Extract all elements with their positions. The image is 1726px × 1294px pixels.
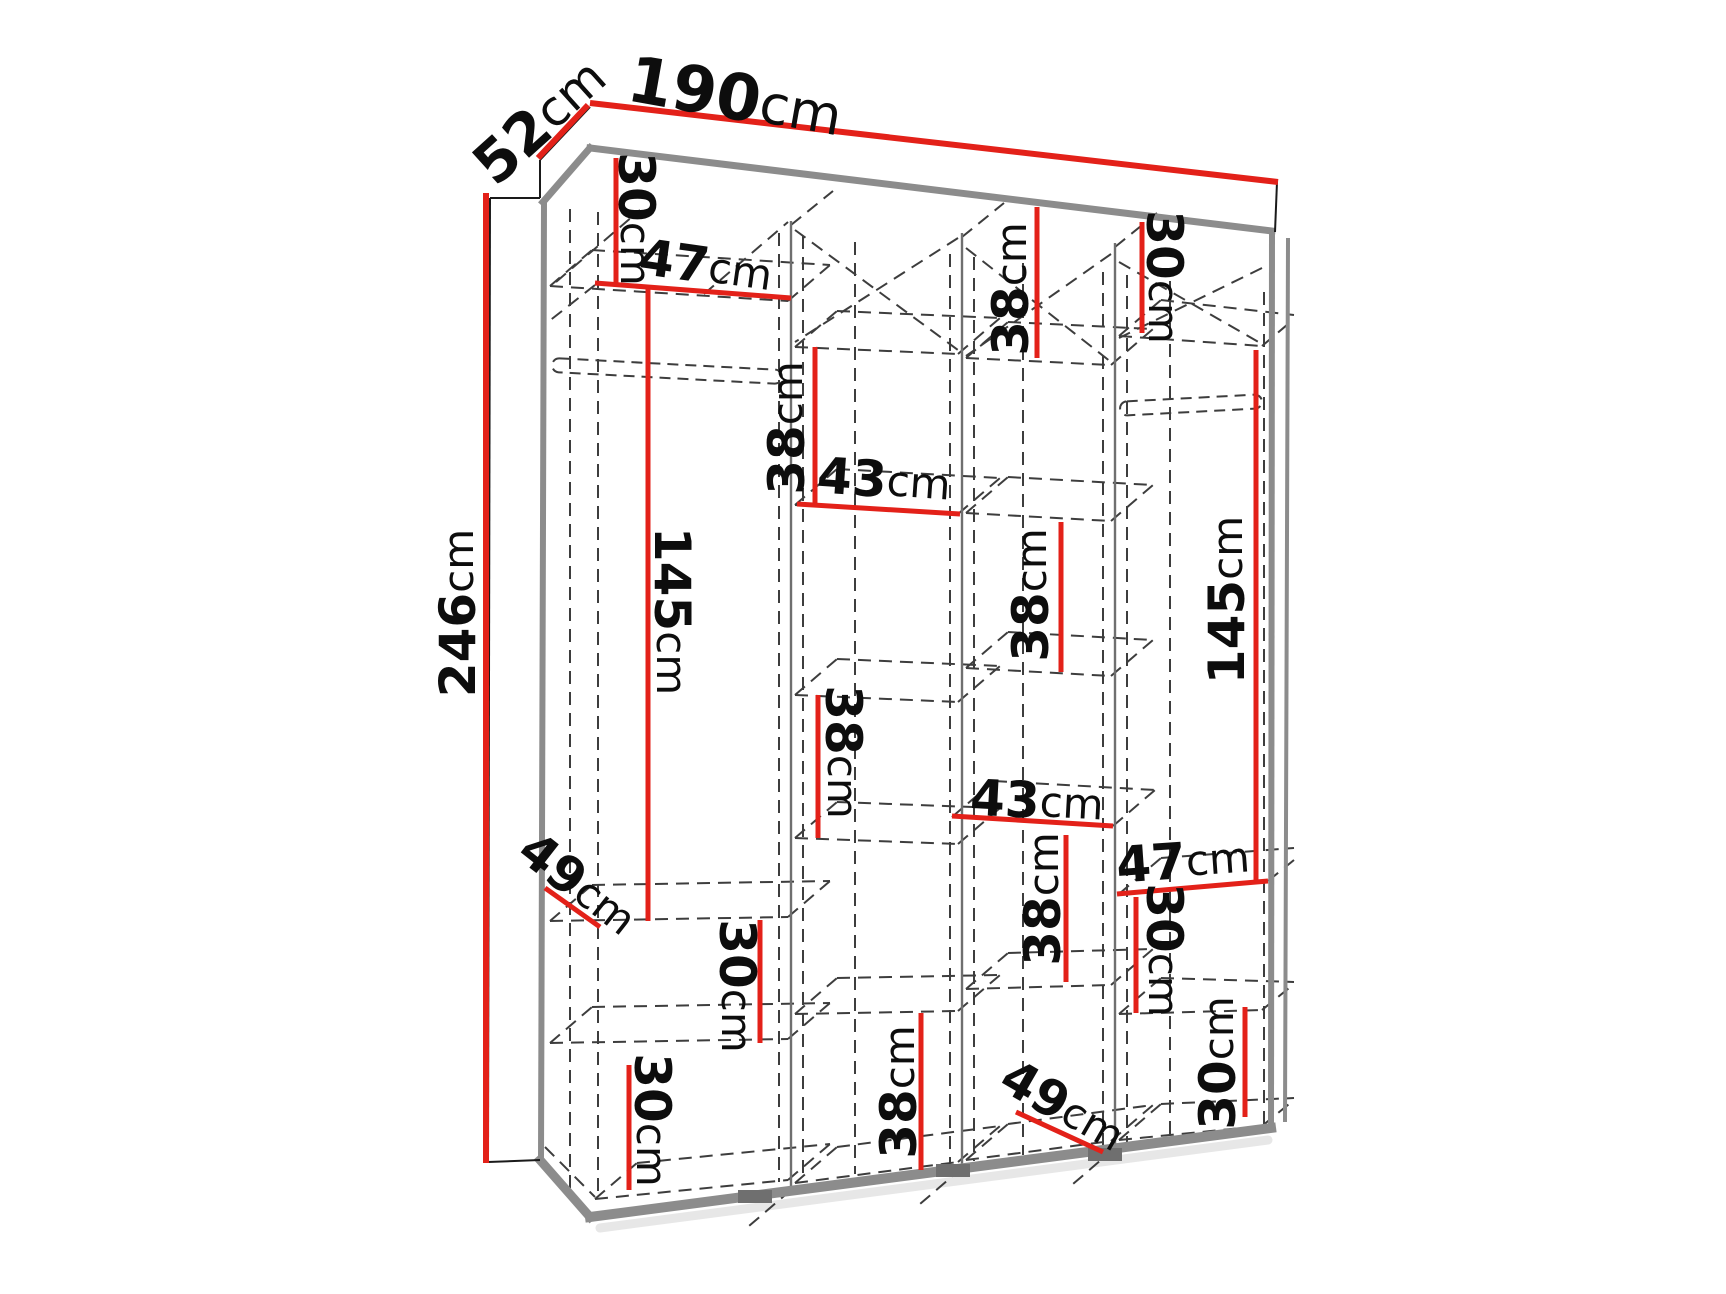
dim-label-c1-145: 145cm (643, 527, 701, 695)
foot-block (738, 1190, 772, 1203)
dim-label-c1-30-mid: 30cm (708, 919, 766, 1053)
dim-label-c2-38-upper: 38cm (758, 361, 816, 495)
dim-label-c3-43: 43cm (969, 769, 1105, 834)
dim-label-c4-30-low: 30cm (1189, 996, 1247, 1130)
dim-label-c3-38-mid: 38cm (1002, 528, 1060, 662)
diagram-background (0, 0, 1726, 1294)
dim-label-c3-top-38: 38cm (982, 222, 1040, 356)
cabinet-edge (1271, 233, 1272, 1128)
wardrobe-dimension-diagram: 190cm52cm246cm30cm47cm38cm30cm38cm43cm14… (0, 0, 1726, 1294)
dim-label-c3-38-low: 38cm (1014, 832, 1072, 966)
dim-label-c4-145: 145cm (1198, 516, 1256, 684)
dim-label-c2-38-bottom: 38cm (870, 1025, 928, 1159)
cabinet-edge (541, 202, 544, 1160)
dim-label-c1-30-low: 30cm (623, 1053, 681, 1187)
foot-block (936, 1164, 970, 1177)
dim-label-c4-30-mid: 30cm (1135, 883, 1193, 1017)
diagram-canvas: 190cm52cm246cm30cm47cm38cm30cm38cm43cm14… (0, 0, 1726, 1294)
dim-label-height: 246cm (429, 529, 487, 697)
dim-label-c4-top-30: 30cm (1135, 210, 1193, 344)
dim-label-c2-38-lower: 38cm (814, 685, 872, 819)
